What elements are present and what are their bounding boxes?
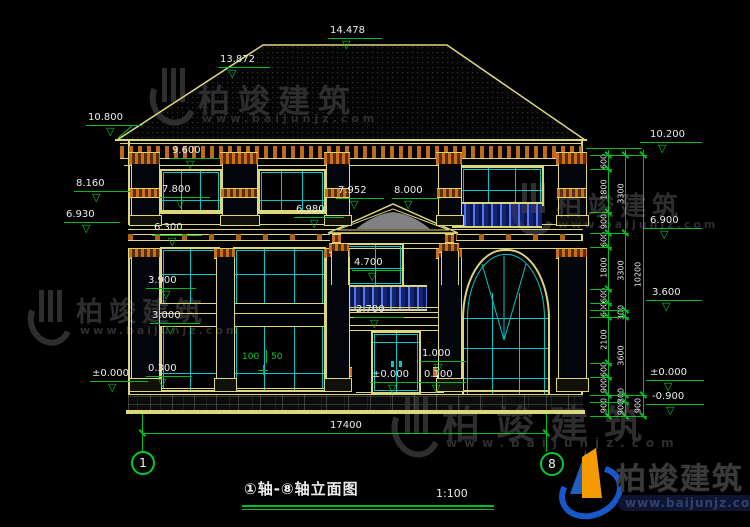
elevation-triangle-icon: ▽ xyxy=(666,405,674,416)
gap-dim-b: 50 xyxy=(271,353,282,362)
elevation-triangle-icon: ▽ xyxy=(158,377,166,388)
pilaster-ring xyxy=(130,188,159,198)
elevation-leader-line xyxy=(294,217,344,218)
transom xyxy=(235,274,324,275)
glazing xyxy=(467,254,545,397)
chain-extension-line xyxy=(590,155,647,156)
elevation-label: 6.300 xyxy=(154,222,183,233)
drawing-scale: 1:100 xyxy=(436,488,468,499)
elevation-leader-line xyxy=(354,317,404,318)
elevation-triangle-icon: ▽ xyxy=(388,383,396,394)
elevation-leader-line xyxy=(146,288,196,289)
drawing-title: ①轴-⑧轴立面图 xyxy=(244,484,359,495)
elevation-label: ±0.000 xyxy=(650,367,687,378)
elevation-leader-line xyxy=(392,198,440,199)
elevation-label: 8.160 xyxy=(76,178,105,189)
watermark-logo-icon xyxy=(39,290,62,322)
elevation-triangle-icon: ▽ xyxy=(370,318,378,329)
elevation-label: 3.600 xyxy=(652,287,681,298)
elevation-label: 10.200 xyxy=(650,129,685,140)
watermark-site: www.baijunjz.com xyxy=(80,324,240,337)
mullion xyxy=(200,171,201,212)
elevation-triangle-icon: ▽ xyxy=(368,271,376,282)
elevation-label: 13.872 xyxy=(220,54,255,65)
pilaster-base xyxy=(436,215,464,226)
elevation-triangle-icon: ▽ xyxy=(342,39,350,50)
elevation-leader-line xyxy=(646,300,702,301)
chain-dim: 1800 xyxy=(600,253,609,283)
window-sill-1f xyxy=(154,388,328,389)
portico-column xyxy=(441,251,459,285)
pilaster-base xyxy=(556,378,589,392)
elevation-leader xyxy=(118,126,132,138)
gap-tick xyxy=(266,350,267,363)
elevation-label: 0.300 xyxy=(148,363,177,374)
axis-bubble-1: 1 xyxy=(131,451,155,475)
transom xyxy=(162,200,220,201)
elevation-leader-line xyxy=(64,222,120,223)
transom xyxy=(464,348,548,349)
chain-dim: 3300 xyxy=(617,256,626,286)
elevation-label: 7.952 xyxy=(338,185,367,196)
elevation-triangle-icon: ▽ xyxy=(310,218,318,229)
elevation-triangle-icon: ▽ xyxy=(350,199,358,210)
elevation-triangle-icon: ▽ xyxy=(404,199,412,210)
elevation-label: 6.930 xyxy=(66,209,95,220)
elevation-label: ±0.000 xyxy=(372,369,409,380)
elevation-leader-line xyxy=(420,361,466,362)
mullion xyxy=(492,293,493,400)
elevation-leader-line xyxy=(422,382,466,383)
elevation-label: 1.000 xyxy=(422,348,451,359)
floor-band-midline xyxy=(128,229,583,230)
elevation-triangle-icon: ▽ xyxy=(658,143,666,154)
elevation-triangle-icon: ▽ xyxy=(432,383,440,394)
cad-elevation-drawing: 17400 1 8 100 50 100 700 100 ①轴-⑧轴立面图 1:… xyxy=(0,0,750,527)
portico-column xyxy=(331,251,349,285)
elevation-triangle-icon: ▽ xyxy=(662,301,670,312)
elevation-triangle-icon: ▽ xyxy=(108,382,116,393)
elevation-triangle-icon: ▽ xyxy=(92,192,100,203)
brand-logo: 柏竣建筑 www.baijunjz.com xyxy=(556,448,750,527)
step-line xyxy=(356,392,444,393)
elevation-triangle-icon: ▽ xyxy=(106,126,114,137)
elevation-leader-line xyxy=(328,38,382,39)
total-width-dim: 17400 xyxy=(330,420,362,431)
mullion xyxy=(488,168,489,204)
pilaster-ring xyxy=(437,188,461,198)
elevation-leader-line xyxy=(152,235,202,236)
pilaster-shaft xyxy=(558,257,587,378)
elevation-leader-line xyxy=(146,376,192,377)
porch-beam-top xyxy=(348,325,438,326)
watermark-logo-icon xyxy=(162,68,185,102)
mullion xyxy=(519,293,520,400)
watermark-site: www.baijunjz.com xyxy=(202,112,378,125)
chain-dim: 2100 xyxy=(600,325,609,355)
arched-window xyxy=(462,249,550,402)
eave-top-line xyxy=(115,139,587,141)
pilaster-base xyxy=(220,215,260,226)
entablature-block xyxy=(332,234,341,243)
chain-dim: 3600 xyxy=(617,341,626,371)
watermark-logo-icon xyxy=(405,396,428,434)
elevation-label: 7.800 xyxy=(162,184,191,195)
elevation-label: 0.100 xyxy=(424,369,453,380)
title-underline xyxy=(242,505,494,507)
logo-brand: 柏竣建筑 xyxy=(616,454,744,498)
arch-sill xyxy=(458,390,550,392)
elevation-leader-line xyxy=(218,67,270,68)
elevation-triangle-icon: ▽ xyxy=(168,236,176,247)
elevation-leader-line xyxy=(90,381,148,382)
elevation-label: 9.600 xyxy=(172,145,201,156)
door-handle xyxy=(399,361,402,367)
elevation-label: ±0.000 xyxy=(92,368,129,379)
elevation-label: 4.700 xyxy=(354,257,383,268)
watermark-site: www.baijunjz.com xyxy=(558,218,718,231)
transom xyxy=(464,378,548,379)
chain-extension-line xyxy=(590,317,629,318)
door-handle xyxy=(391,361,394,367)
logo-building-icon xyxy=(582,448,602,498)
pilaster-shaft xyxy=(216,257,235,378)
chain-extension-line xyxy=(590,233,629,234)
elevation-leader-line xyxy=(336,198,384,199)
pilaster-base xyxy=(324,378,352,392)
elevation-label: 10.800 xyxy=(88,112,123,123)
door-transom xyxy=(373,342,419,343)
pilaster-ring xyxy=(221,188,257,198)
gap-cross xyxy=(263,365,264,375)
chain-dim: 10200 xyxy=(634,260,643,290)
elevation-leader-line xyxy=(640,142,702,143)
elevation-leader-line xyxy=(352,270,402,271)
chain-extension-line xyxy=(590,310,629,311)
elevation-label: 8.000 xyxy=(394,185,423,196)
eave-line-2 xyxy=(120,143,582,144)
elevation-leader-line xyxy=(370,382,424,383)
elevation-leader-line xyxy=(160,197,210,198)
gap-dim-a: 100 xyxy=(242,353,259,362)
transom xyxy=(260,200,324,201)
title-underline-2 xyxy=(242,509,494,510)
elevation-label: 6.980 xyxy=(296,204,325,215)
entablature-block xyxy=(445,234,454,243)
chain-link-top xyxy=(586,148,642,149)
elevation-label: 14.478 xyxy=(330,25,365,36)
transom xyxy=(464,318,548,319)
elevation-label: 3.900 xyxy=(148,275,177,286)
elevation-triangle-icon: ▽ xyxy=(186,159,194,170)
elevation-leader-line xyxy=(646,380,704,381)
elevation-triangle-icon: ▽ xyxy=(176,198,184,209)
chain-dim: 300 xyxy=(617,298,626,328)
window-sill xyxy=(156,210,222,212)
elevation-leader-line xyxy=(74,191,130,192)
elevation-label: 2.700 xyxy=(356,304,385,315)
logo-site: www.baijunjz.com xyxy=(618,495,750,511)
elevation-leader-line xyxy=(170,158,220,159)
watermark-logo-icon xyxy=(522,183,545,213)
elevation-triangle-icon: ▽ xyxy=(82,223,90,234)
pilaster-base xyxy=(214,378,237,392)
mullion xyxy=(281,171,282,212)
transom xyxy=(235,373,324,374)
